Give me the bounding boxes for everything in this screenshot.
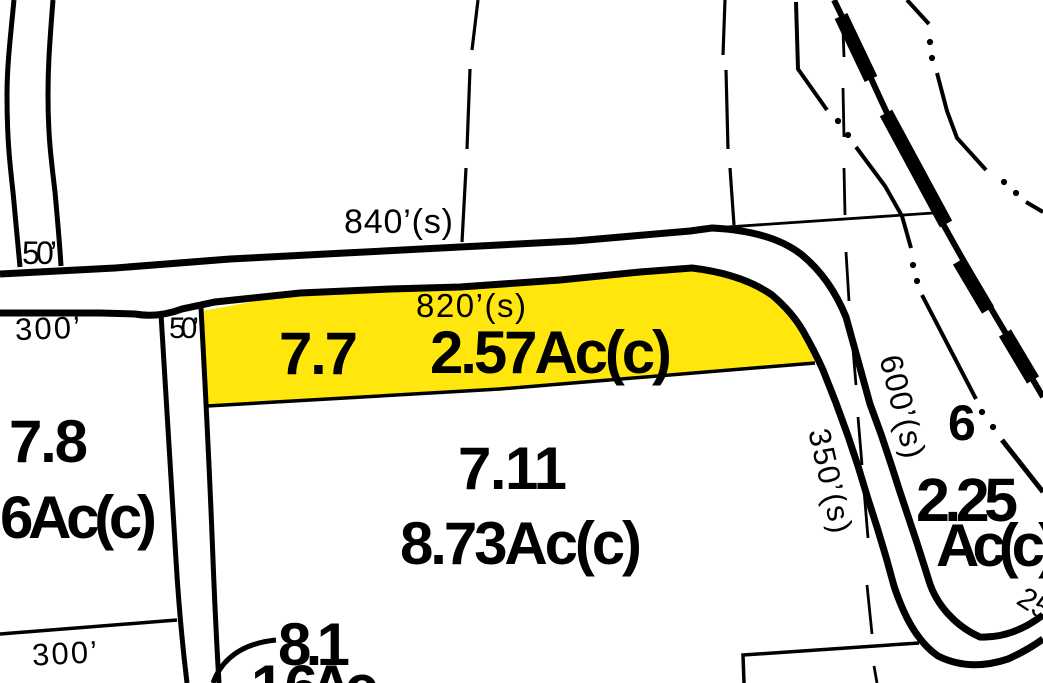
svg-text:50’: 50’ bbox=[169, 312, 199, 345]
svg-text:7.11: 7.11 bbox=[458, 435, 567, 502]
svg-text:50’: 50’ bbox=[22, 235, 57, 271]
svg-text:7.7: 7.7 bbox=[279, 320, 358, 387]
svg-text:840’(s): 840’(s) bbox=[344, 203, 453, 241]
svg-text:6: 6 bbox=[948, 395, 976, 451]
svg-text:Ac(c): Ac(c) bbox=[936, 512, 1043, 579]
svg-text:6Ac(c): 6Ac(c) bbox=[0, 484, 157, 551]
svg-text:820’(s): 820’(s) bbox=[416, 287, 526, 324]
svg-text:7.8: 7.8 bbox=[9, 408, 88, 475]
svg-text:8.73Ac(c): 8.73Ac(c) bbox=[400, 510, 642, 577]
svg-text:1.6Ac: 1.6Ac bbox=[251, 653, 378, 683]
svg-text:2.57Ac(c): 2.57Ac(c) bbox=[430, 319, 672, 386]
